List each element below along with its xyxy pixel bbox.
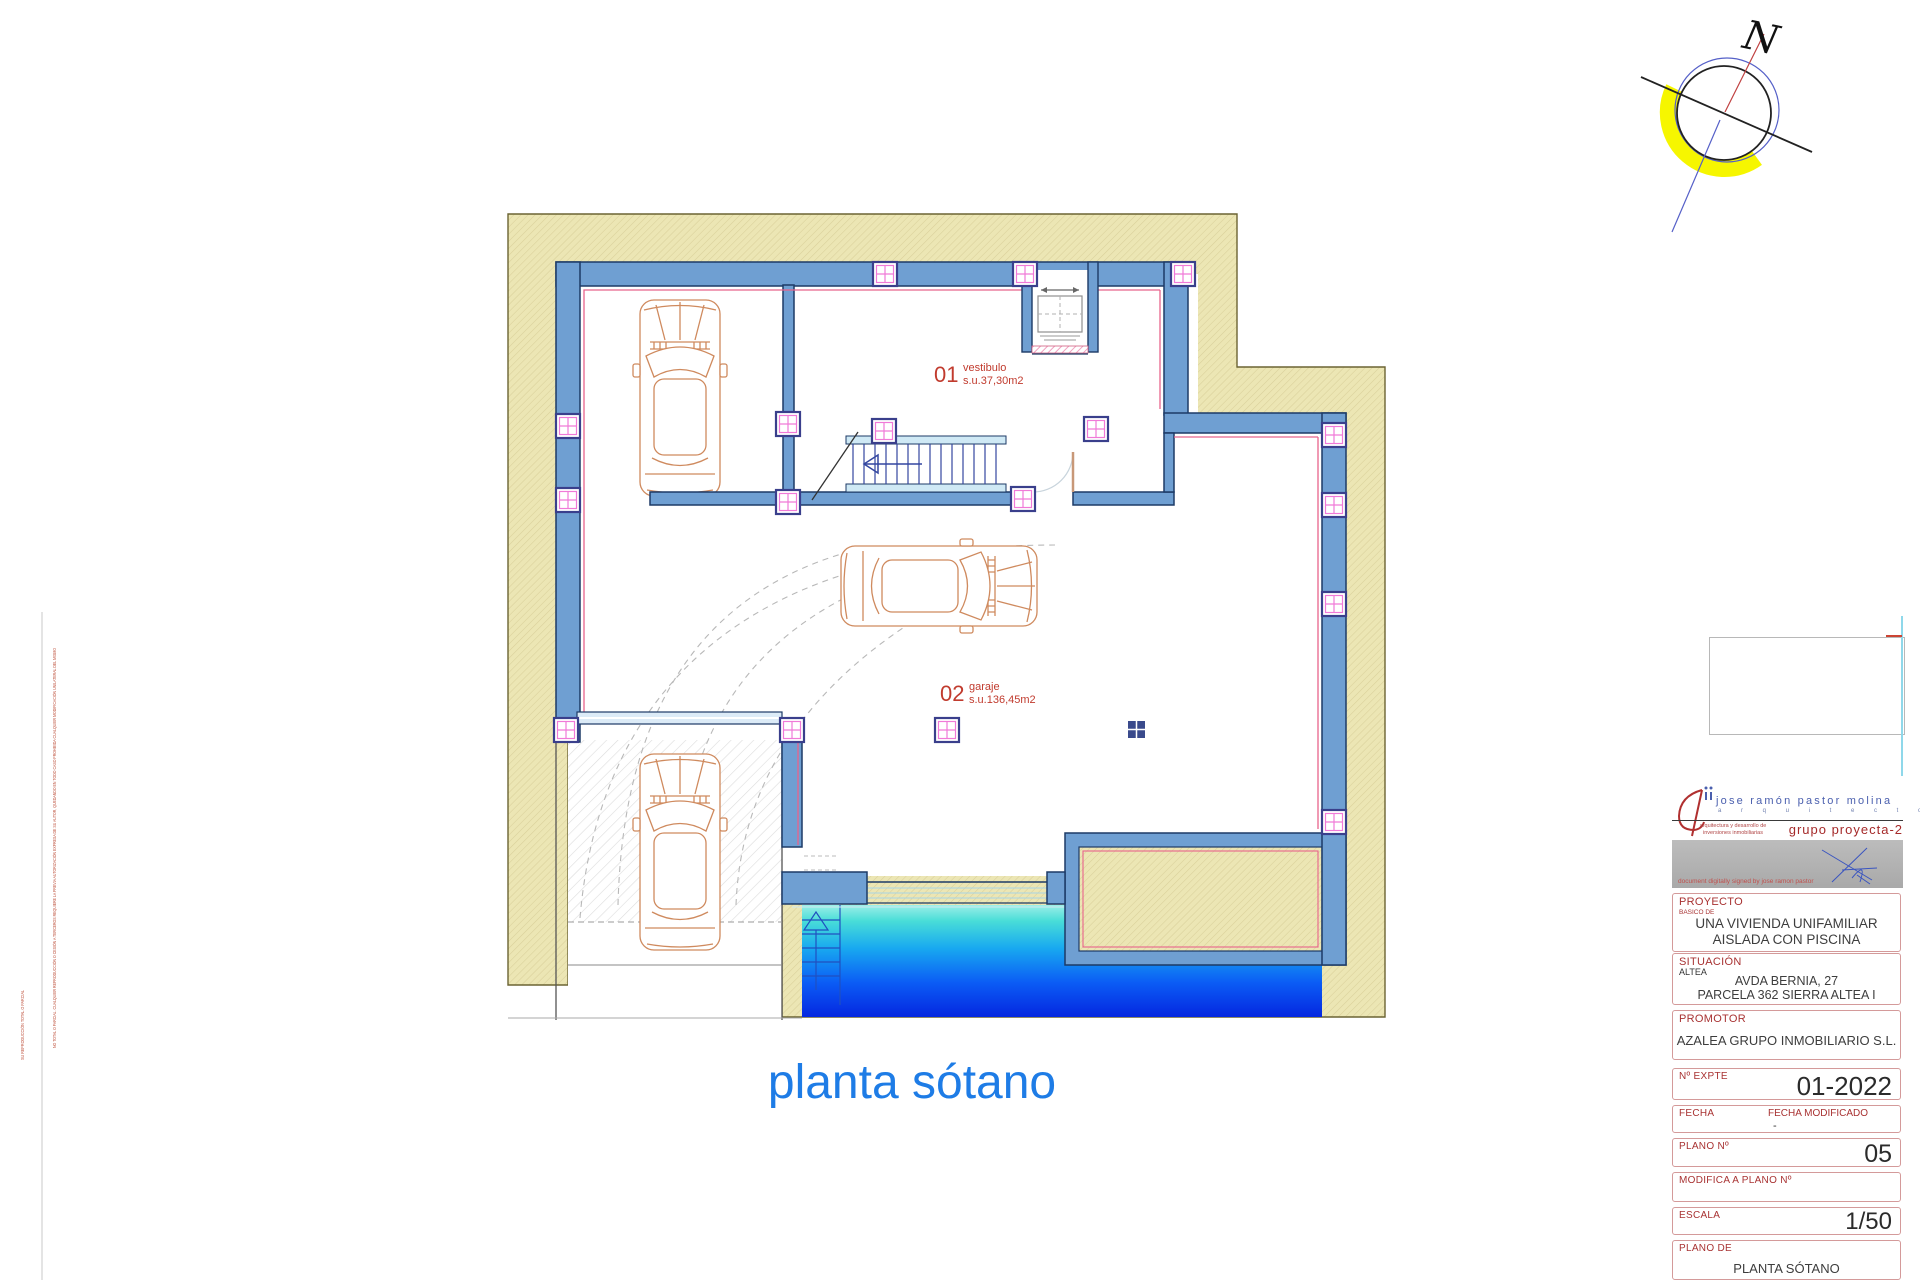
car-center bbox=[841, 539, 1037, 633]
escala-value: 1/50 bbox=[1845, 1208, 1892, 1236]
titleblock-situacion: SITUACIÓN ALTEA AVDA BERNIA, 27 PARCELA … bbox=[1672, 953, 1901, 1005]
architect-name: jose ramón pastor molina bbox=[1716, 795, 1892, 807]
architect-logo-block: jose ramón pastor molina a r q u i t e c… bbox=[1672, 783, 1903, 840]
north-letter: N bbox=[1738, 12, 1785, 65]
margin-red-tick bbox=[1886, 635, 1902, 637]
titleblock-expediente: Nº EXPTE 01-2022 bbox=[1672, 1068, 1901, 1100]
expediente-value: 01-2022 bbox=[1797, 1071, 1892, 1102]
digital-signature-box: document digitally signed by jose ramon … bbox=[1672, 840, 1903, 888]
field-sublabel: BASICO DE bbox=[1679, 909, 1714, 916]
architect-title: a r q u i t e c t o bbox=[1718, 808, 1920, 814]
sheet-margin: NO TOTAL O PARCIAL. CUALQUIER REPRODUCCI… bbox=[19, 612, 57, 1280]
field-label: PLANO DE bbox=[1679, 1243, 1732, 1254]
signature-note: document digitally signed by jose ramon … bbox=[1678, 878, 1814, 885]
titleblock-fecha: FECHA FECHA MODIFICADO - bbox=[1672, 1105, 1901, 1133]
titleblock-modifica: MODIFICA A PLANO Nº bbox=[1672, 1172, 1901, 1202]
situacion-line2: PARCELA 362 SIERRA ALTEA I bbox=[1673, 988, 1900, 1002]
car-parked-top bbox=[633, 300, 727, 496]
proyecto-line1: UNA VIVIENDA UNIFAMILIAR bbox=[1673, 916, 1900, 931]
promotor-value: AZALEA GRUPO INMOBILIARIO S.L. bbox=[1673, 1033, 1900, 1048]
field-label: PROYECTO bbox=[1679, 896, 1743, 908]
plano-num-value: 05 bbox=[1864, 1140, 1892, 1169]
studio-tagline: arquitectura y desarrollo de inversiones… bbox=[1678, 823, 1788, 836]
north-compass: N bbox=[1641, 12, 1812, 232]
field-label: ESCALA bbox=[1679, 1210, 1720, 1221]
margin-cyan-line bbox=[1901, 616, 1903, 776]
field-label: MODIFICA A PLANO Nº bbox=[1679, 1175, 1792, 1186]
titleblock-escala: ESCALA 1/50 bbox=[1672, 1207, 1901, 1235]
group-name: grupo proyecta-2 bbox=[1789, 822, 1903, 837]
titleblock-promotor: PROMOTOR AZALEA GRUPO INMOBILIARIO S.L. bbox=[1672, 1010, 1901, 1060]
room-name: garaje bbox=[969, 681, 1000, 693]
titleblock-plano-de: PLANO DE PLANTA SÓTANO bbox=[1672, 1240, 1901, 1280]
plano-de-value: PLANTA SÓTANO bbox=[1673, 1261, 1900, 1276]
room-number: 02 bbox=[940, 681, 964, 706]
fecha-mod-label: FECHA MODIFICADO bbox=[1768, 1108, 1868, 1119]
room-area: s.u.136,45m2 bbox=[969, 694, 1036, 706]
room-number: 01 bbox=[934, 362, 958, 387]
field-label: PROMOTOR bbox=[1679, 1013, 1746, 1025]
signature-empty-box bbox=[1709, 637, 1905, 735]
legal-notice-vertical-2: SU REPRODUCCIÓN TOTAL O PARCIAL bbox=[19, 990, 25, 1060]
small-column bbox=[1128, 721, 1145, 738]
field-label: FECHA bbox=[1679, 1108, 1714, 1119]
drawing-sheet: 01 vestibulo s.u.37,30m2 02 garaje s.u.1… bbox=[0, 0, 1920, 1280]
room-name: vestibulo bbox=[963, 362, 1006, 374]
proyecto-line2: AISLADA CON PISCINA bbox=[1673, 932, 1900, 947]
logo-rule bbox=[1672, 820, 1903, 821]
car-driveway bbox=[633, 754, 727, 950]
drawing-title: planta sótano bbox=[768, 1056, 1056, 1109]
field-label: PLANO Nº bbox=[1679, 1141, 1729, 1152]
room-area: s.u.37,30m2 bbox=[963, 375, 1024, 387]
situacion-line1: AVDA BERNIA, 27 bbox=[1673, 974, 1900, 988]
titleblock-plano-num: PLANO Nº 05 bbox=[1672, 1138, 1901, 1167]
floor-plan-drawing: 01 vestibulo s.u.37,30m2 02 garaje s.u.1… bbox=[0, 0, 1920, 1280]
patio-block bbox=[1065, 833, 1346, 965]
field-label: Nº EXPTE bbox=[1679, 1071, 1728, 1082]
legal-notice-vertical: NO TOTAL O PARCIAL. CUALQUIER REPRODUCCI… bbox=[51, 648, 57, 1048]
fecha-mod-value: - bbox=[1773, 1120, 1777, 1132]
garage-door bbox=[577, 712, 782, 724]
titleblock-proyecto: PROYECTO BASICO DE UNA VIVIENDA UNIFAMIL… bbox=[1672, 893, 1901, 952]
